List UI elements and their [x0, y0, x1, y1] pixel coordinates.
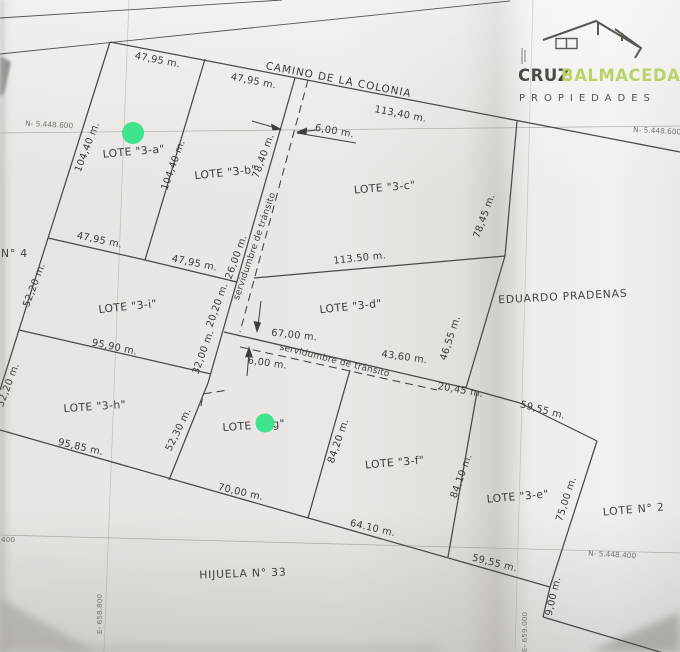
scanned-survey-plan: 47,95 m. 47,95 m. 113,40 m. 6,00 m. 104,…	[0, 0, 680, 652]
grid-label-n400-left: 400	[1, 535, 15, 544]
grid-label-e659000: E- 659.000	[520, 612, 529, 652]
logo-tagline: PROPIEDADES	[519, 93, 656, 104]
neighbor-label-left: N° 4	[1, 247, 28, 260]
logo-text-balmaceda: BALMACEDA	[561, 66, 680, 85]
plan-canvas: 47,95 m. 47,95 m. 113,40 m. 6,00 m. 104,…	[0, 0, 680, 652]
marker-dot-2	[256, 414, 275, 433]
marker-dot-1	[122, 122, 144, 144]
grid-label-e658800: E- 658.800	[95, 594, 104, 635]
